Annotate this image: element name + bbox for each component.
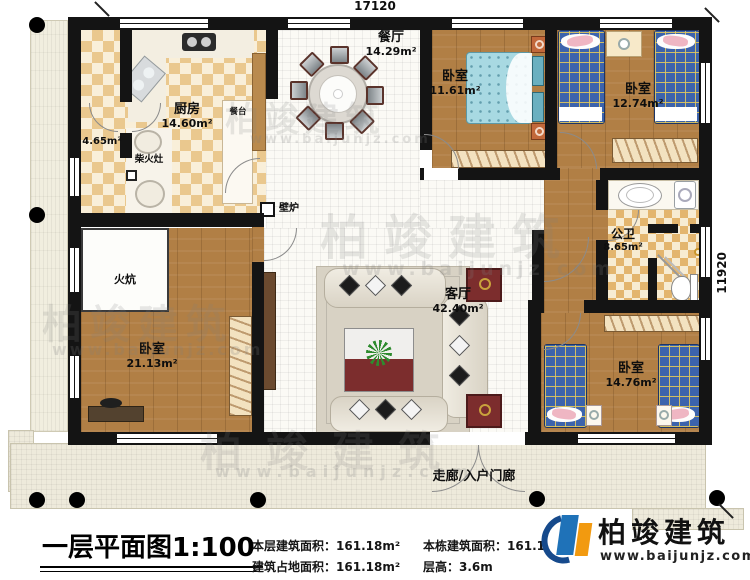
bed-headboard — [532, 56, 544, 86]
window — [699, 318, 712, 360]
room-name: 卧室 — [419, 70, 491, 85]
stat-floor-area: 本层建筑面积：161.18m² — [252, 537, 400, 554]
stat-label: 层高： — [423, 560, 459, 574]
room-area: 21.13m² — [116, 358, 188, 371]
room-label-porch: 走廊/入户门廊 — [418, 470, 530, 485]
wall-segment — [528, 300, 544, 313]
wall-segment — [252, 262, 264, 432]
column-dot — [29, 207, 45, 223]
wall-segment — [532, 230, 544, 308]
room-label-kang: 火炕 — [90, 274, 160, 287]
column-dot — [29, 492, 45, 508]
wall-segment — [600, 168, 712, 180]
dining-chair — [290, 81, 308, 100]
wall-segment — [690, 224, 699, 233]
wall-segment — [68, 213, 264, 227]
window — [452, 17, 523, 30]
desk — [88, 406, 144, 422]
room-name: 客厅 — [422, 288, 494, 303]
wall-segment — [458, 168, 560, 180]
dimension-top: 17120 — [338, 0, 412, 14]
column-dot — [529, 491, 545, 507]
dimension-right: 11920 — [716, 238, 730, 308]
brand-url: www.baijunjz.com — [600, 549, 750, 564]
nightstand-lamp — [618, 38, 630, 50]
room-label-counter: 餐台 — [220, 108, 256, 118]
side-deck — [30, 20, 68, 432]
room-area: 8.65m² — [588, 242, 658, 254]
brand-name: 柏竣建筑 — [598, 511, 730, 551]
cooktop-burner — [187, 37, 197, 47]
room-label-bedroom-left: 卧室 21.13m² — [116, 343, 188, 371]
toilet-tank — [690, 274, 698, 302]
entry-porch — [10, 443, 706, 509]
dining-table-center — [333, 89, 343, 99]
window — [68, 356, 81, 398]
wall-segment — [120, 30, 132, 102]
plant — [366, 340, 392, 366]
bed-headboard — [532, 92, 544, 122]
wardrobe — [612, 138, 698, 163]
wardrobe — [229, 316, 252, 416]
wood-stove-pot — [134, 130, 162, 154]
window — [120, 17, 208, 30]
dining-chair — [325, 122, 344, 140]
room-label-bathroom: 公卫 8.65m² — [588, 228, 658, 253]
kang-bed — [81, 228, 169, 312]
room-label-hall-area: 4.65m² — [72, 136, 132, 148]
wardrobe — [604, 315, 704, 332]
window — [288, 17, 350, 30]
stat-footprint-area: 建筑占地面积：161.18m² — [252, 558, 400, 575]
stat-label: 建筑占地面积： — [252, 560, 336, 574]
wall-segment — [584, 300, 712, 313]
nightstand-lamp — [535, 40, 544, 49]
stat-label: 本栋建筑面积： — [423, 539, 507, 553]
room-area: 14.76m² — [595, 377, 667, 390]
room-area: 12.74m² — [602, 98, 674, 111]
chimney-box — [126, 170, 137, 181]
twin-bed — [558, 30, 605, 124]
column-dot — [250, 492, 266, 508]
stat-value: 3.6m — [459, 560, 493, 574]
dining-chair — [330, 46, 349, 64]
room-label-dining: 餐厅 14.29m² — [356, 31, 426, 59]
room-label-wood-stove: 柴火灶 — [120, 155, 178, 166]
bed-foot-fold — [559, 107, 602, 121]
window — [68, 248, 81, 292]
window — [578, 432, 675, 445]
stat-label: 本层建筑面积： — [252, 539, 336, 553]
washer-drum — [678, 188, 692, 202]
room-name: 餐厅 — [356, 31, 426, 46]
floor-plan: 17120 11920 厨房 14.60m² 4.65m² 柴火灶 餐台 餐厅 … — [0, 0, 750, 580]
entrance-opening — [430, 432, 525, 445]
room-label-bedroom-top: 卧室 11.61m² — [419, 70, 491, 98]
bar-counter — [252, 53, 266, 151]
plan-title: 一层平面图1:100 — [40, 527, 263, 568]
room-area: 42.40m² — [422, 303, 494, 316]
column-dot — [29, 17, 45, 33]
room-area: 14.29m² — [356, 46, 426, 59]
bed-sheet-fold — [506, 53, 532, 123]
sink-basin — [131, 77, 146, 92]
brand-logo-icon — [542, 512, 594, 568]
nightstand-lamp — [659, 410, 669, 420]
bathroom-sink-basin — [626, 187, 654, 203]
nightstand-lamp — [589, 410, 599, 420]
window — [699, 227, 712, 277]
wall-segment — [420, 168, 424, 180]
wall-segment — [266, 17, 278, 99]
column-dot — [709, 490, 725, 506]
stat-floor-height: 层高：3.6m — [423, 558, 493, 575]
room-name: 卧室 — [595, 362, 667, 377]
room-label-fireplace: 壁炉 — [279, 203, 323, 215]
dimension-tick — [94, 1, 110, 17]
stat-building-area: 本栋建筑面积：161.1 — [423, 537, 545, 554]
room-area: 11.61m² — [419, 85, 491, 98]
sink-basin — [141, 65, 156, 80]
stat-value: 161.18m² — [336, 560, 400, 574]
stat-value: 161.1 — [507, 539, 545, 553]
nightstand-lamp — [535, 127, 544, 136]
room-label-bedroom-bottomright: 卧室 14.76m² — [595, 362, 667, 390]
toilet-bowl — [671, 276, 691, 301]
desk-chair — [100, 398, 122, 408]
tv-cabinet — [263, 272, 276, 390]
stat-value: 161.18m² — [336, 539, 400, 553]
wood-stove-pot — [135, 180, 165, 208]
wall-segment — [596, 180, 608, 210]
door-opening — [252, 227, 264, 263]
room-area: 14.60m² — [152, 118, 222, 131]
room-name: 厨房 — [152, 103, 222, 118]
plan-scale: 1:100 — [172, 533, 255, 563]
room-label-living: 客厅 42.40m² — [422, 288, 494, 316]
room-name: 卧室 — [602, 83, 674, 98]
wardrobe — [451, 150, 548, 168]
room-label-kitchen: 厨房 14.60m² — [152, 103, 222, 131]
window — [68, 158, 81, 196]
twin-bed — [544, 344, 587, 428]
room-name: 公卫 — [588, 228, 658, 242]
wall-segment — [545, 17, 557, 168]
window — [117, 432, 217, 445]
dining-chair — [366, 86, 384, 105]
column-dot — [69, 492, 85, 508]
window — [600, 17, 672, 30]
window — [699, 63, 712, 123]
room-label-bedroom-topright: 卧室 12.74m² — [602, 83, 674, 111]
side-table-ring — [479, 404, 491, 416]
plan-title-text: 一层平面图 — [42, 533, 172, 563]
room-name: 卧室 — [116, 343, 188, 358]
wall-segment — [528, 313, 541, 432]
cooktop-burner — [201, 37, 211, 47]
wall-segment — [648, 258, 657, 302]
